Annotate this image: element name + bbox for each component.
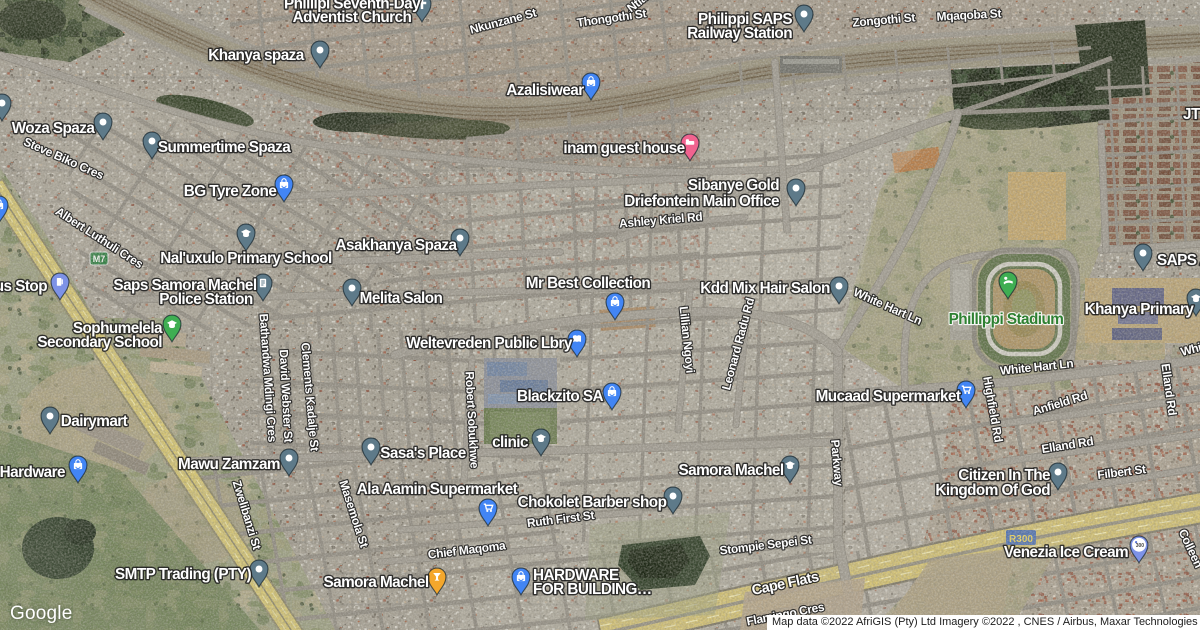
svg-text:Mucaad Supermarket: Mucaad Supermarket: [816, 388, 961, 405]
svg-text:Ala Aamin Supermarket: Ala Aamin Supermarket: [357, 481, 518, 498]
svg-text:Driefontein Main Office: Driefontein Main Office: [624, 193, 779, 210]
svg-text:Sasa's Place: Sasa's Place: [380, 445, 466, 462]
svg-text:Melita Salon: Melita Salon: [360, 290, 443, 307]
svg-text:SAPS A: SAPS A: [1157, 252, 1200, 269]
svg-text:Phillippi Stadium: Phillippi Stadium: [949, 311, 1064, 328]
svg-text:n Hardware: n Hardware: [0, 464, 65, 481]
svg-text:BG Tyre Zone: BG Tyre Zone: [184, 183, 277, 200]
svg-text:Dairymart: Dairymart: [61, 413, 128, 430]
svg-text:Kdd Mix Hair Salon: Kdd Mix Hair Salon: [700, 280, 830, 297]
svg-text:Venezia Ice Cream: Venezia Ice Cream: [1004, 544, 1128, 561]
svg-text:Khanya Primary: Khanya Primary: [1085, 301, 1195, 318]
svg-text:Police Station: Police Station: [159, 291, 253, 308]
svg-text:Adventist Church: Adventist Church: [293, 9, 412, 26]
svg-text:Azalisiwear: Azalisiwear: [506, 82, 584, 99]
svg-text:Woza Spaza: Woza Spaza: [12, 120, 96, 137]
svg-text:Samora Machel: Samora Machel: [678, 462, 783, 479]
svg-text:Kingdom Of God: Kingdom Of God: [935, 482, 1050, 499]
svg-text:inam guest house: inam guest house: [563, 140, 684, 157]
svg-text:Mr Best Collection: Mr Best Collection: [526, 275, 651, 292]
svg-text:JT: JT: [1183, 106, 1200, 123]
svg-text:Asakhanya Spaza: Asakhanya Spaza: [336, 237, 458, 254]
svg-text:FOR BUILDING…: FOR BUILDING…: [533, 581, 652, 598]
svg-text:Secondary School: Secondary School: [37, 334, 162, 351]
svg-text:Samora Machel: Samora Machel: [323, 574, 428, 591]
svg-text:Railway Station: Railway Station: [687, 25, 792, 42]
svg-text:300: 300: [1136, 543, 1145, 549]
svg-text:Weltevreden Public Lbry: Weltevreden Public Lbry: [406, 335, 573, 352]
svg-text:Mawu Zamzam: Mawu Zamzam: [178, 456, 280, 473]
svg-text:SMTP Trading (PTY): SMTP Trading (PTY): [115, 566, 251, 583]
svg-text:Nal'uxulo Primary School: Nal'uxulo Primary School: [160, 250, 332, 267]
svg-text:Bus Stop: Bus Stop: [0, 278, 47, 295]
svg-text:Summertime Spaza: Summertime Spaza: [158, 139, 291, 156]
svg-text:Sibanye Gold: Sibanye Gold: [688, 177, 779, 194]
svg-text:clinic: clinic: [492, 434, 529, 451]
svg-text:Khanya spaza: Khanya spaza: [208, 47, 304, 64]
svg-text:Blackzito SA: Blackzito SA: [517, 388, 604, 405]
